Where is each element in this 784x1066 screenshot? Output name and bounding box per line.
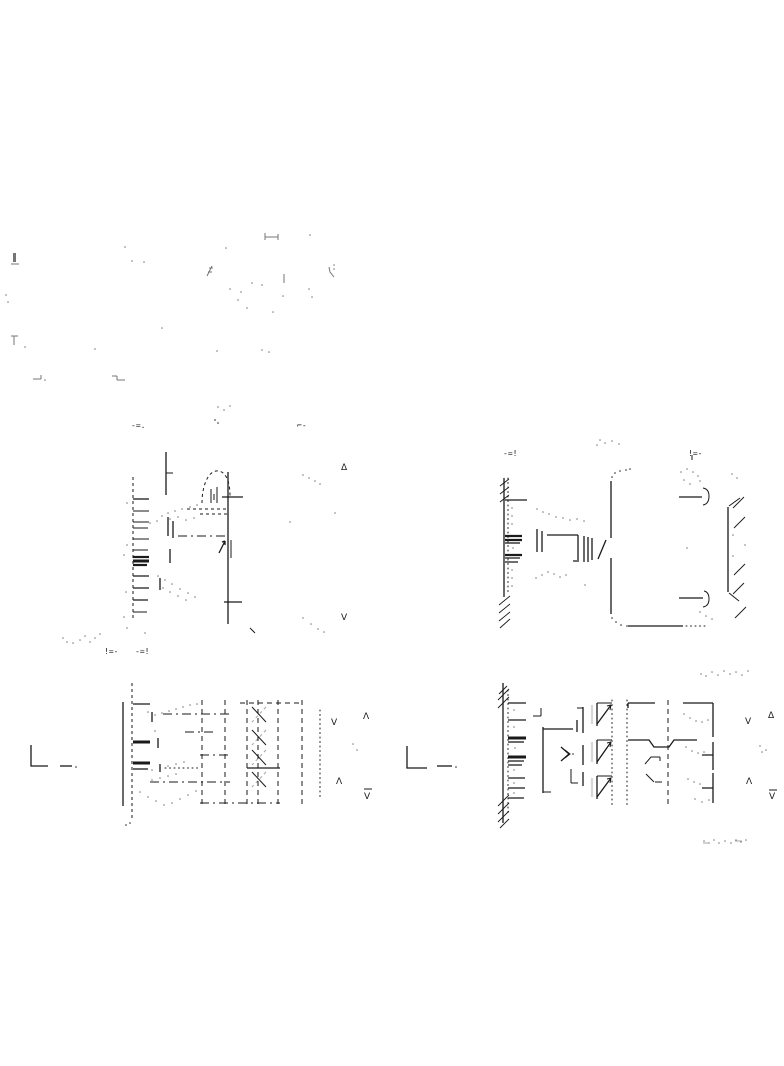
section-arrow-delta-outer: Δ [768, 711, 775, 721]
section-arrow-lambda-outer: Λ [363, 712, 370, 722]
diagonal-cells [592, 703, 612, 799]
drawing-sheet: -=. ⌐- Δ V [0, 0, 784, 1066]
center-armature [533, 707, 583, 793]
section-arrow-v-inner: V [745, 717, 752, 727]
vessel-outline [611, 455, 746, 626]
handwriting-remnant-top [701, 671, 748, 676]
section-arrow-lambda-inner: Λ [746, 777, 753, 787]
section-label-left: -=! [503, 449, 517, 458]
drawing-canvas: -=. ⌐- Δ V [0, 0, 784, 1066]
section-arrow-v-outer: V [364, 792, 371, 802]
hatched-plate [498, 683, 526, 828]
section-arrow-v-inner: V [331, 718, 338, 728]
section-label-pair: !=- -=! [63, 633, 149, 656]
corner-bracket [31, 745, 48, 766]
left-wall [499, 478, 527, 628]
corner-bracket [407, 746, 427, 768]
figure-mid-left-section: -=. ⌐- Δ V [124, 420, 348, 633]
cross-braces [252, 707, 266, 787]
comb-teeth [133, 499, 149, 612]
pair-label-left: !=- [104, 647, 118, 656]
wall-hatching [499, 596, 510, 628]
right-frame [683, 703, 713, 803]
dome-arc [202, 471, 230, 503]
section-label-right: !=- [688, 449, 702, 458]
dimension-bracket [265, 233, 278, 240]
section-arrow-down: V [341, 613, 348, 623]
section-label-right: ⌐- [297, 421, 307, 430]
connector-plug [536, 509, 606, 585]
section-arrow-up: Δ [341, 463, 348, 473]
notched-rail [628, 740, 697, 747]
figure-mid-right-section: -=! !=- [499, 440, 746, 628]
right-hatching [733, 497, 746, 618]
figure-bot-right-section: V Δ Λ V [407, 671, 777, 843]
section-label-left: -=. [131, 421, 145, 430]
section-arrow-lambda-inner: Λ [336, 777, 343, 787]
figure-top-faint-sketch [6, 233, 334, 410]
pair-label-right: -=! [135, 647, 149, 656]
section-arrow-v-outer: V [769, 792, 776, 802]
sketch-speckle [6, 235, 334, 410]
figure-bot-left-section: V Λ Λ V [31, 683, 372, 825]
grid-centerlines [202, 700, 302, 806]
